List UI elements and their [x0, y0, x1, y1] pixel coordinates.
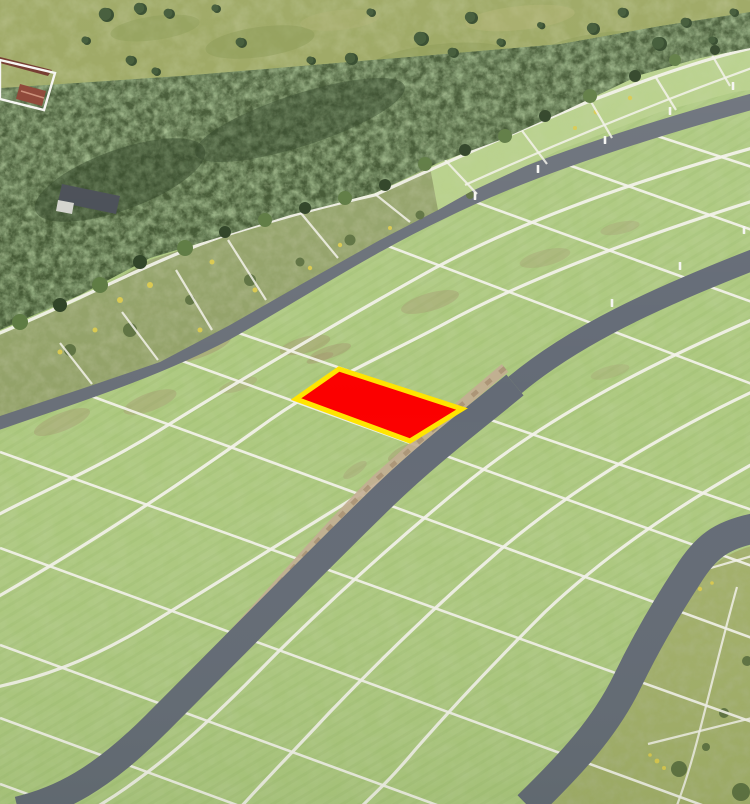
aerial-photo-canvas: Aerial drone photo of a field subdivided… — [0, 0, 750, 804]
aerial-photo: Aerial drone photo of a field subdivided… — [0, 0, 750, 804]
light-gradient — [0, 0, 750, 804]
